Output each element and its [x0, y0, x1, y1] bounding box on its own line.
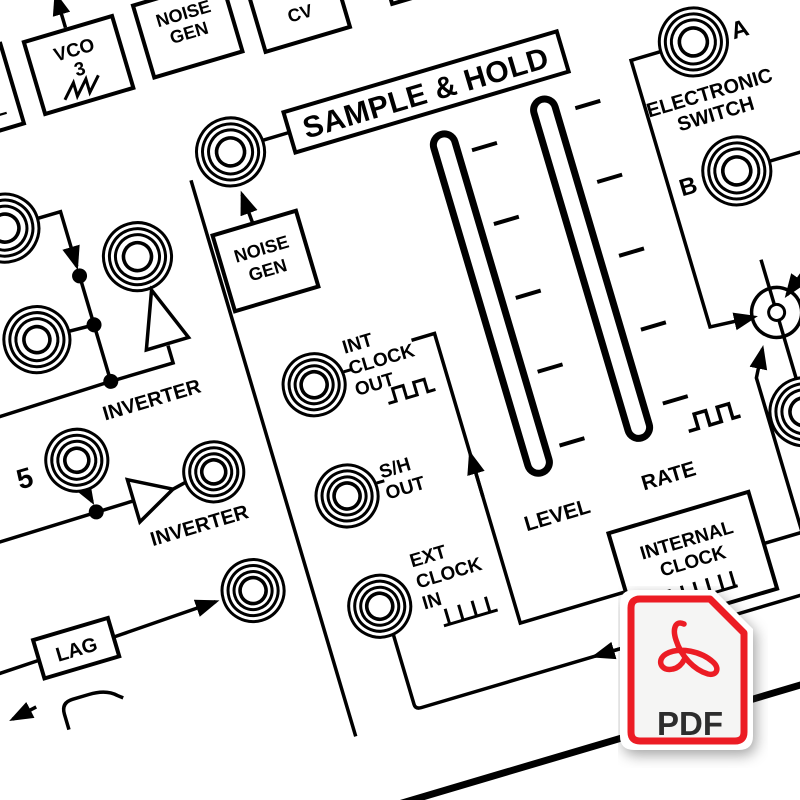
pdf-label: PDF: [657, 705, 723, 742]
inverter-triangle: [130, 284, 188, 350]
jack: [0, 186, 47, 271]
jack: [341, 568, 418, 645]
noise-gen-box: NOISE GEN: [204, 181, 319, 311]
jack-a-label: A: [728, 14, 752, 45]
lag-output-arrow: [112, 602, 217, 637]
junction-dot: [70, 267, 89, 286]
screenshot-canvas: L VCO 3 NOISE GEN CV SAMPLE & HOLD: [0, 0, 800, 800]
bottom-left-arrow: [11, 707, 37, 719]
pdf-file-badge[interactable]: PDF: [618, 586, 768, 768]
int-clock-out-group: INT CLOCK OUT: [334, 317, 435, 413]
jack: [309, 457, 386, 534]
module-box-cv: CV: [246, 0, 350, 52]
module-box-partial-right: [369, 0, 483, 4]
rate-label: RATE: [639, 457, 699, 495]
junction-dot: [85, 315, 104, 334]
module-box-partial-left: L: [0, 44, 24, 163]
junction-dot: [87, 503, 106, 522]
inverter2-label: INVERTER: [148, 501, 252, 551]
jack: [695, 129, 780, 214]
jack: [0, 299, 78, 381]
square-wave-icon: [685, 402, 741, 432]
jack: [215, 552, 292, 629]
module-box-vco3: VCO 3: [14, 0, 134, 114]
sample-hold-title: SAMPLE & HOLD: [299, 41, 553, 145]
ext-clock-in-line3: IN: [420, 589, 444, 615]
jack: [38, 422, 115, 499]
jack: [176, 435, 251, 510]
es-right-arrow: [772, 225, 800, 295]
vco3-up-arrow: [56, 0, 66, 28]
level-label: LEVEL: [522, 495, 594, 536]
electronic-switch-section: ELECTRONIC SWITCH A B: [621, 0, 800, 463]
junction-dot: [101, 372, 120, 391]
pulse-train-icon: [439, 595, 497, 626]
wire-noisejack-title: [261, 132, 290, 141]
rate-slider: RATE: [529, 71, 754, 495]
lag-input-wire: [0, 660, 40, 678]
lag-curve-icon: [61, 685, 127, 729]
jack-b-label: B: [676, 171, 700, 202]
int-clock-up-arrow: [470, 454, 482, 496]
jack: [188, 110, 273, 195]
jack: [651, 0, 736, 84]
sh-out-group: S/H OUT: [371, 452, 428, 506]
ext-clock-in-group: EXT CLOCK IN: [408, 532, 498, 630]
jack5-label: 5: [13, 461, 37, 495]
es-b-wire: [769, 143, 800, 161]
lag-box: LAG: [33, 618, 119, 679]
inverter-triangle: [127, 468, 179, 522]
jack: [276, 346, 353, 423]
jack: [95, 214, 180, 299]
sample-hold-title-box: SAMPLE & HOLD: [283, 31, 568, 152]
module-box-noise-gen-top: NOISE GEN: [133, 0, 243, 78]
noise-gen-arrow: [242, 194, 253, 224]
